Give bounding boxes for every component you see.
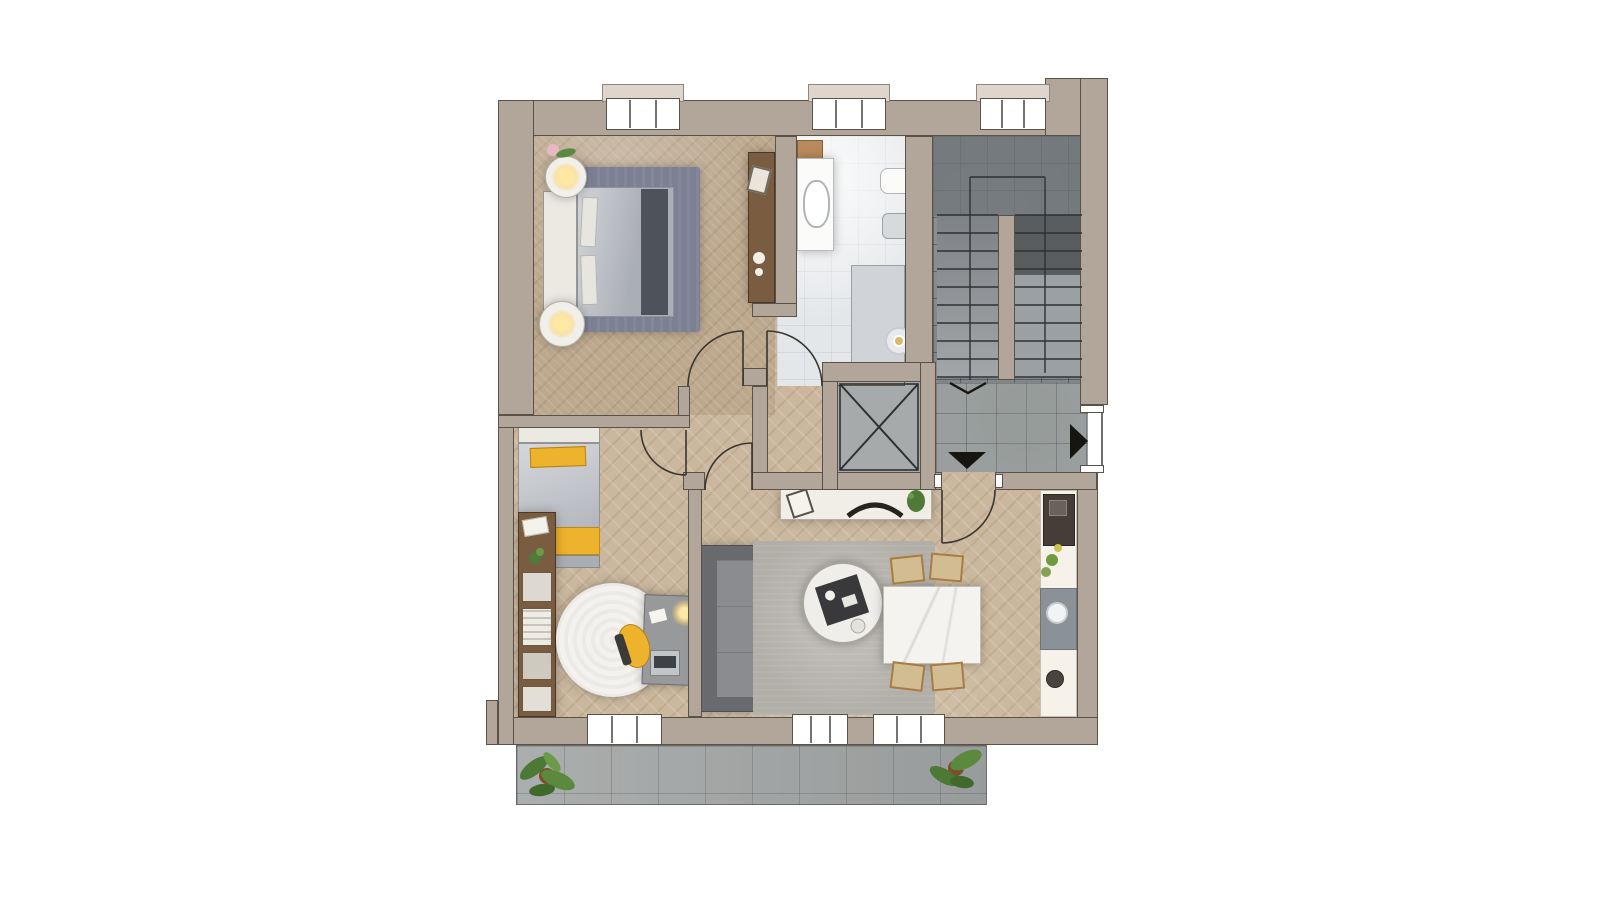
bathroom-door-arc	[767, 331, 822, 386]
window-ticks-top	[630, 100, 1024, 128]
stair-treads-left	[937, 215, 998, 377]
stair-treads-right	[1015, 215, 1082, 377]
elevator-cross	[840, 384, 918, 470]
kitchen-greens	[1041, 544, 1062, 577]
window-ticks-bottom	[612, 716, 921, 743]
master-door-arc	[688, 331, 743, 386]
plan-overlay	[0, 0, 1600, 900]
stair-direction-chevron	[950, 383, 986, 393]
bath-lamp-bulb	[895, 337, 903, 345]
coffee-table-glass	[851, 619, 865, 633]
landing-down-arrow	[948, 452, 986, 469]
bed2-desk-chair	[612, 620, 655, 671]
stair-opening-outline	[970, 177, 1045, 380]
coffee-table-tray	[815, 574, 869, 626]
floor-plan	[0, 0, 1600, 900]
bedroom2-door-arc	[641, 430, 686, 475]
terrace-plant-right	[927, 745, 985, 790]
living-door-arc	[705, 443, 752, 490]
tv	[848, 505, 902, 516]
entry-right-arrow	[1070, 424, 1088, 459]
elevator-symbol	[840, 384, 918, 470]
console-plant	[907, 490, 925, 512]
bed2-shelf-plant	[529, 548, 544, 564]
master-flower-decor	[547, 144, 577, 159]
terrace-plant-left	[516, 750, 577, 798]
entry-door-arc	[942, 490, 995, 543]
